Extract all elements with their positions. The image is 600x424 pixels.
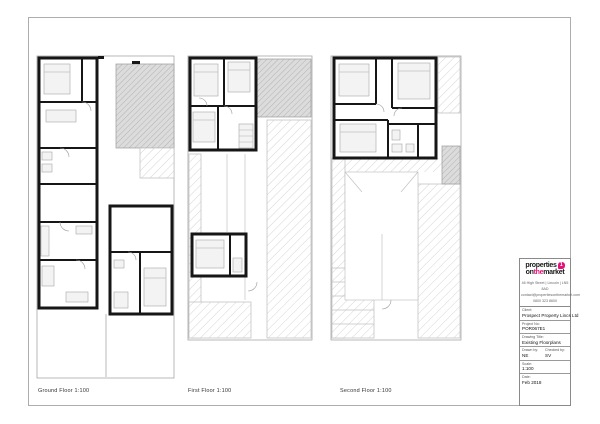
brand-word-properties: properties [525,262,556,269]
scale-field: Scale: 1:100 [520,361,570,374]
scale-value: 1:100 [522,366,568,372]
project-no-field: Project No: POR067E1 [520,321,570,334]
brand-line1: properties1 [522,262,568,269]
date-value: Feb 2018 [522,380,568,386]
brand-address: 46 High Street | Lincoln | LN5 8AD [521,280,569,292]
title-block: properties1 onthemarket 46 High Street |… [519,258,571,406]
drawn-by-field: Drawn by: NE [522,348,545,358]
client-field: Client: Prospect Property Lincs Ltd [520,307,570,320]
brand-word-market: market [543,269,564,276]
brand-word-on: on [526,269,534,276]
drawn-by-value: NE [522,353,545,359]
second-floor-plan-drawing [330,54,462,386]
checked-by-field: Checked by: SV [545,348,568,358]
first-floor-label: First Floor 1:100 [188,388,231,394]
client-value: Prospect Property Lincs Ltd [522,313,568,319]
drawn-checked-row: Drawn by: NE Checked by: SV [520,347,570,360]
drawing-title-field: Drawing Title: Existing Floorplans [520,334,570,347]
date-field: Date: Feb 2018 [520,374,570,386]
drawing-sheet: Ground Floor 1:100 First Floor 1:100 Sec… [0,0,600,424]
brand-logo: properties1 onthemarket [520,259,570,278]
first-floor-plan-drawing [187,54,313,386]
checked-by-value: SV [545,353,568,359]
ground-floor-label: Ground Floor 1:100 [38,388,89,394]
drawing-title-value: Existing Floorplans [522,340,568,346]
second-floor-label: Second Floor 1:100 [340,388,392,394]
onthemarket-bubble-icon: 1 [558,262,565,269]
brand-word-the: the [534,269,544,276]
project-no-value: POR067E1 [522,326,568,332]
ground-floor-plan-drawing [36,54,176,386]
brand-contact: 46 High Street | Lincoln | LN5 8AD conta… [520,278,570,307]
brand-line2: onthemarket [522,269,568,276]
brand-phone: 0800 323 8600 [521,298,569,304]
